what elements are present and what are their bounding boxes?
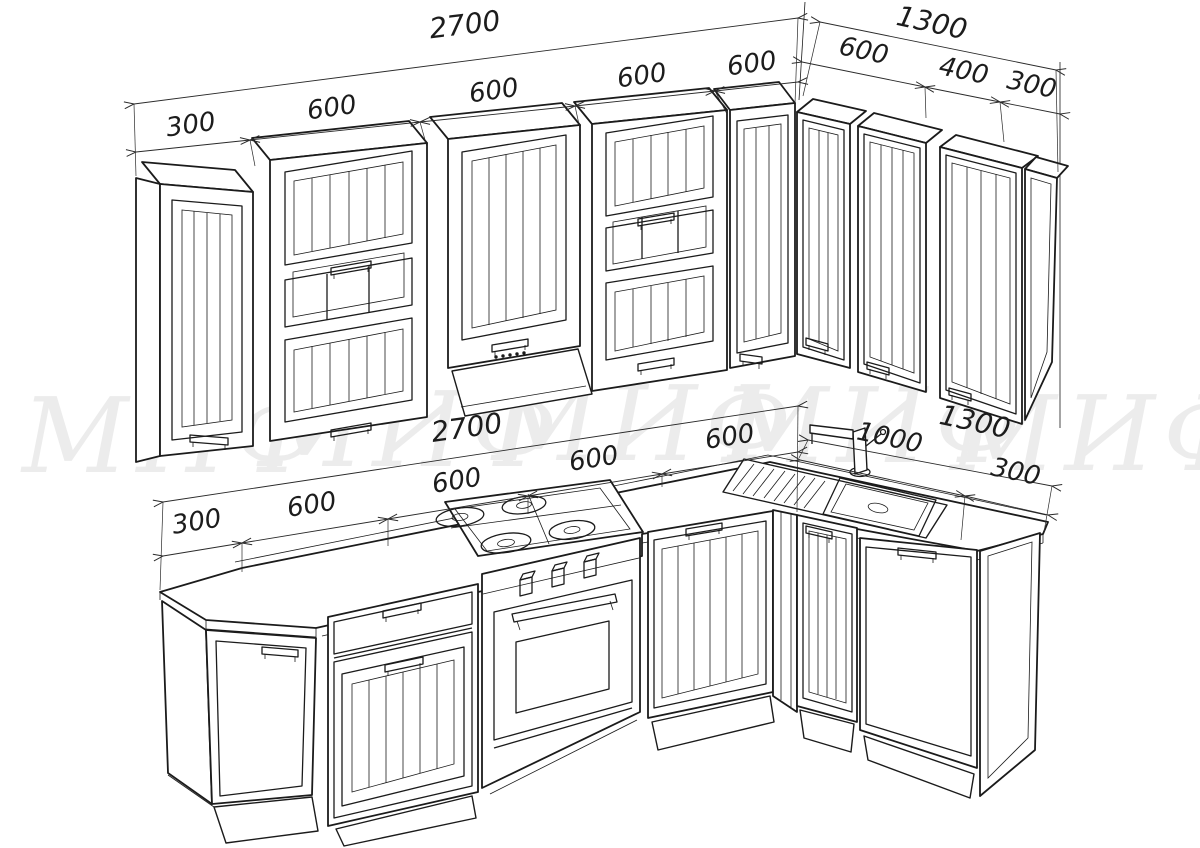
base-cabinet-drawers xyxy=(328,584,478,846)
sink-base-cabinet xyxy=(797,515,857,752)
base-cabinet-end-right xyxy=(860,533,1040,798)
kitchen-drawing-canvas: МИФ МИФ МИФ МИФ МИФ xyxy=(0,0,1200,848)
base-cabinet-door xyxy=(648,511,774,750)
wall-cabinet-flip-1 xyxy=(252,121,427,441)
kitchen-drawing: МИФ МИФ МИФ МИФ МИФ xyxy=(0,0,1200,848)
wall-cabinet-end-left xyxy=(136,162,253,462)
wall-cabinet-flip-2 xyxy=(574,88,727,391)
corner-post xyxy=(773,510,797,712)
